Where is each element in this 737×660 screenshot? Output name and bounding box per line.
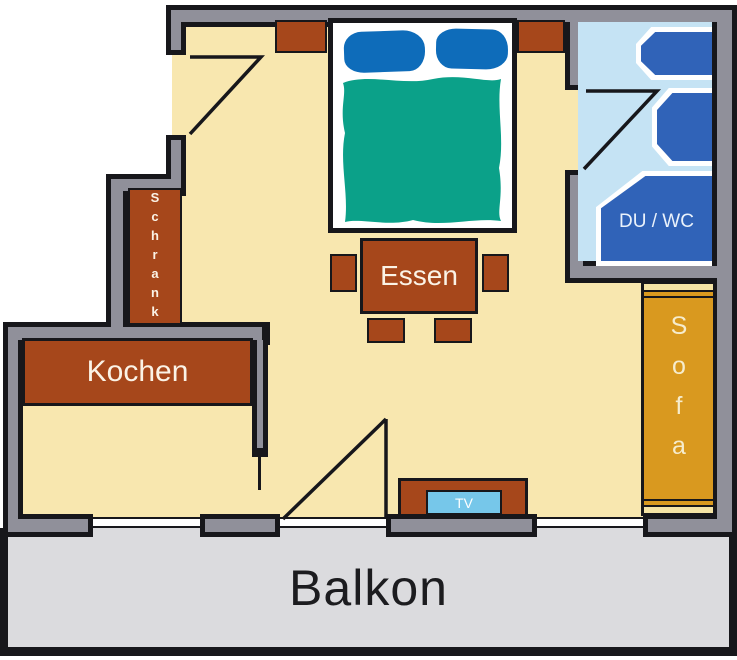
wall-core-left-mid <box>111 179 123 340</box>
balcony-area: Balkon <box>0 528 737 656</box>
window-door-threshold <box>280 517 386 528</box>
sofa-label: Sofa <box>666 312 691 472</box>
sink <box>641 32 712 75</box>
tv-label: TV <box>455 495 473 511</box>
tv-screen: TV <box>426 490 502 515</box>
wardrobe-label: Schrank <box>149 190 162 323</box>
dining-table: Essen <box>360 238 478 314</box>
wall-core-left-lower <box>8 327 18 532</box>
wall-core-bottom-2 <box>205 519 275 532</box>
window-left <box>93 517 200 528</box>
wall-core-bottom-1 <box>8 519 88 532</box>
wall-core-bath-bottom <box>570 266 732 278</box>
kitchen-label: Kochen <box>87 355 189 389</box>
nightstand-left <box>275 20 327 53</box>
floor-entrance-doorway <box>172 55 186 135</box>
dining-chair-bottom-2 <box>434 318 472 343</box>
kitchen-counter: Kochen <box>22 338 253 406</box>
wall-core-left-upper <box>171 10 181 50</box>
dining-chair-right <box>482 254 509 292</box>
tv-stand: TV <box>398 478 528 517</box>
balcony-label: Balkon <box>289 559 448 617</box>
dining-chair-left <box>330 254 357 292</box>
bed <box>328 18 517 233</box>
pillow-left <box>343 30 425 74</box>
wall-core-bottom-3 <box>391 519 532 532</box>
bathroom-label: DU / WC <box>619 211 694 233</box>
toilet <box>657 93 712 161</box>
sofa: Sofa <box>641 281 716 516</box>
nightstand-right <box>517 20 565 53</box>
wardrobe: Schrank <box>128 188 182 325</box>
dining-label: Essen <box>380 260 458 292</box>
wall-core-bottom-4 <box>648 519 732 532</box>
dining-chair-bottom-1 <box>367 318 405 343</box>
pillow-right <box>435 28 508 70</box>
window-right <box>537 517 643 528</box>
floor-plan: Balkon DU / WC <box>0 0 737 660</box>
wall-core-kitchen-spur <box>257 340 263 448</box>
